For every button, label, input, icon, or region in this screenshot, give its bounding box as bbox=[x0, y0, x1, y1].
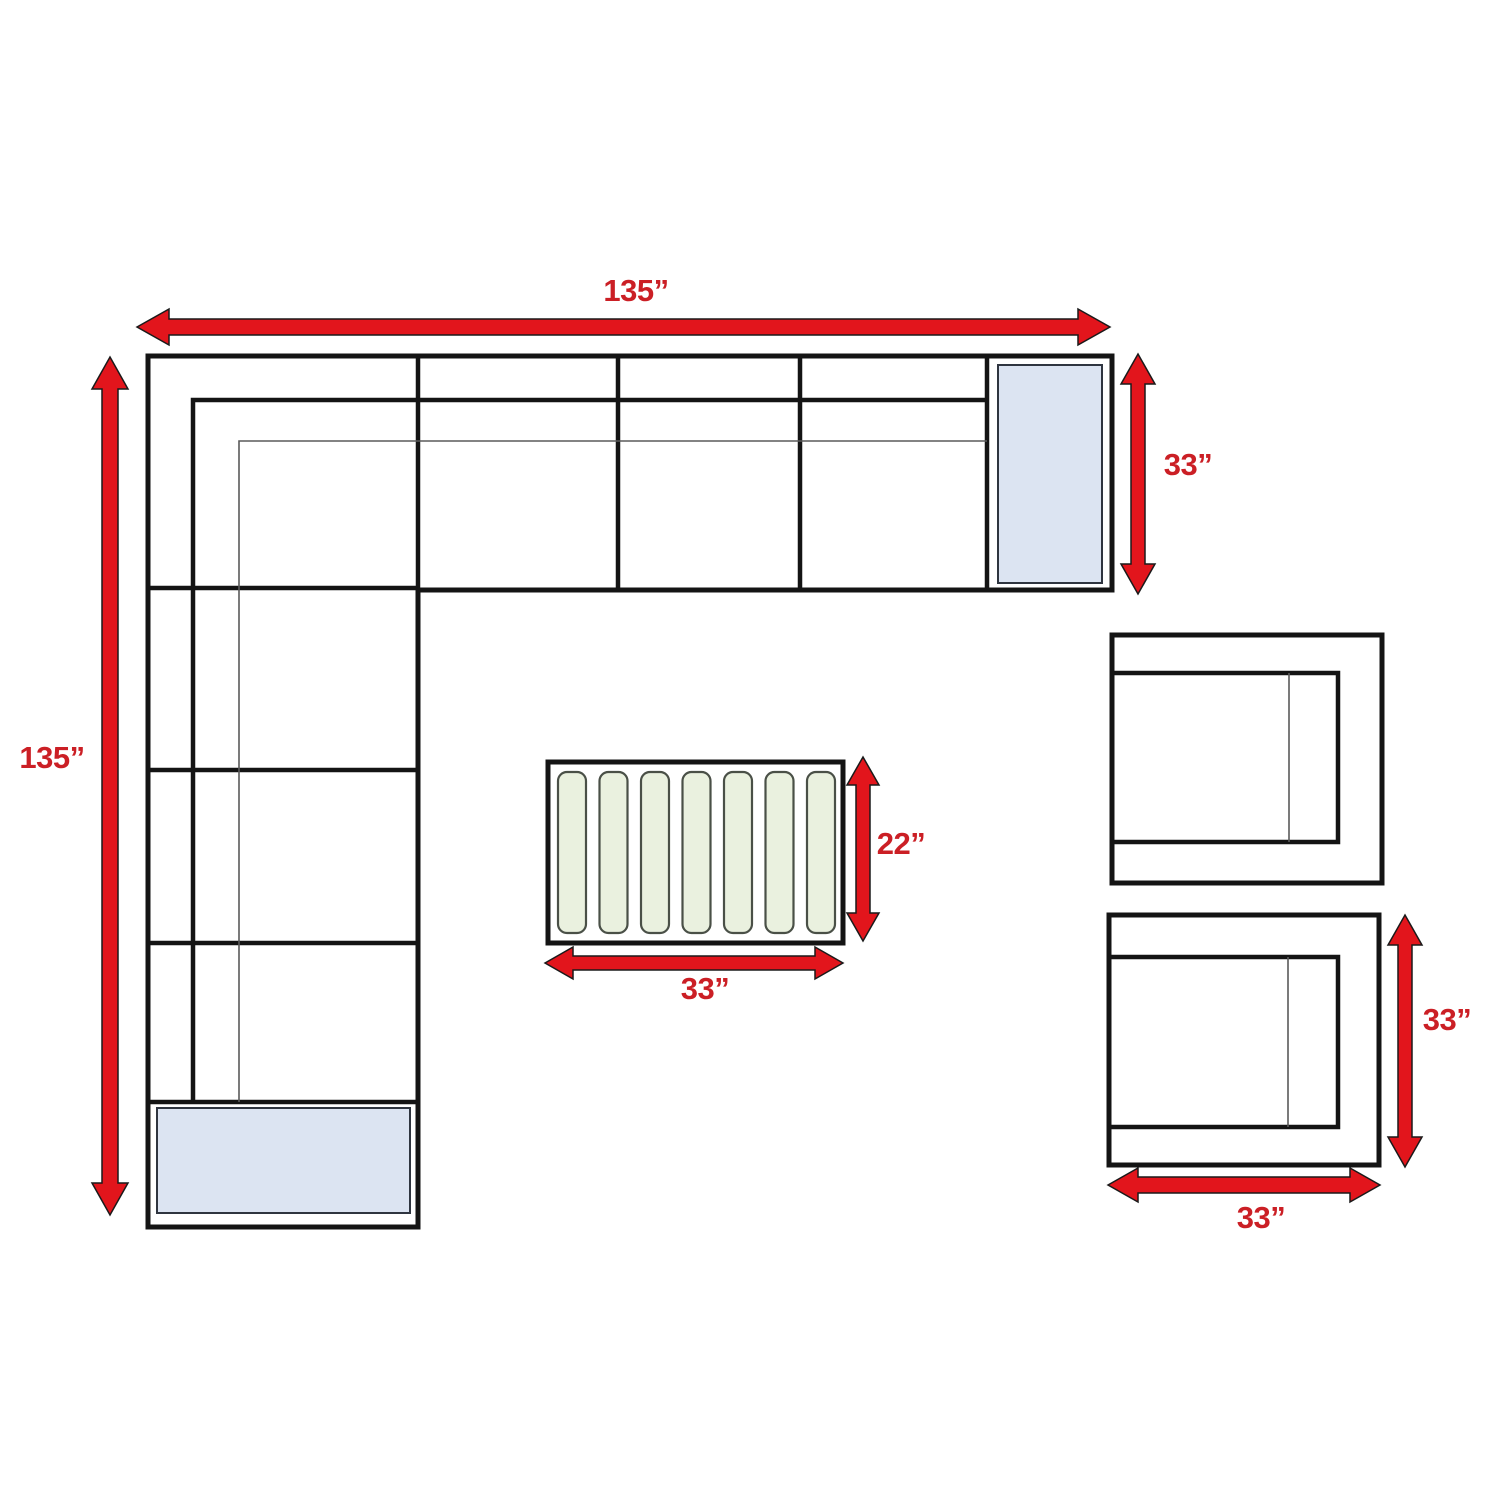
sectional-backrest-line bbox=[193, 400, 987, 1102]
table-width-label: 33” bbox=[681, 971, 729, 1007]
sectional-end-depth-label: 33” bbox=[1164, 447, 1212, 483]
table-slat bbox=[683, 772, 711, 933]
sectional-end-cushion bbox=[998, 365, 1102, 583]
floor-plan-diagram: 135” 135” 33” 22” 33” 33” 33” bbox=[0, 0, 1500, 1500]
armchair-depth-label: 33” bbox=[1423, 1002, 1471, 1038]
table-depth-arrow-icon bbox=[847, 757, 879, 941]
armchair-bottom bbox=[1109, 915, 1379, 1165]
armchair-top bbox=[1112, 635, 1382, 883]
sectional-end-cushion bbox=[157, 1108, 410, 1213]
sectional-width-label: 135” bbox=[603, 273, 668, 309]
diagram-linework bbox=[0, 0, 1500, 1500]
table-slat bbox=[641, 772, 669, 933]
sectional-depth-arrow-icon bbox=[92, 357, 128, 1215]
sectional-depth-label: 135” bbox=[19, 740, 84, 776]
armchair-depth-arrow-icon bbox=[1388, 915, 1422, 1167]
table-slat bbox=[558, 772, 586, 933]
armchair-seat bbox=[1112, 673, 1338, 842]
table-slat bbox=[807, 772, 835, 933]
armchair-width-label: 33” bbox=[1237, 1200, 1285, 1236]
armchair-seat bbox=[1109, 957, 1338, 1127]
coffee-table-slats bbox=[558, 772, 835, 933]
table-slat bbox=[724, 772, 752, 933]
sectional-end-depth-arrow-icon bbox=[1121, 354, 1155, 594]
table-slat bbox=[766, 772, 794, 933]
coffee-table bbox=[548, 762, 843, 943]
table-slat bbox=[600, 772, 628, 933]
table-depth-label: 22” bbox=[877, 826, 925, 862]
armchair-width-arrow-icon bbox=[1108, 1168, 1380, 1202]
sectional-width-arrow-icon bbox=[137, 309, 1110, 345]
